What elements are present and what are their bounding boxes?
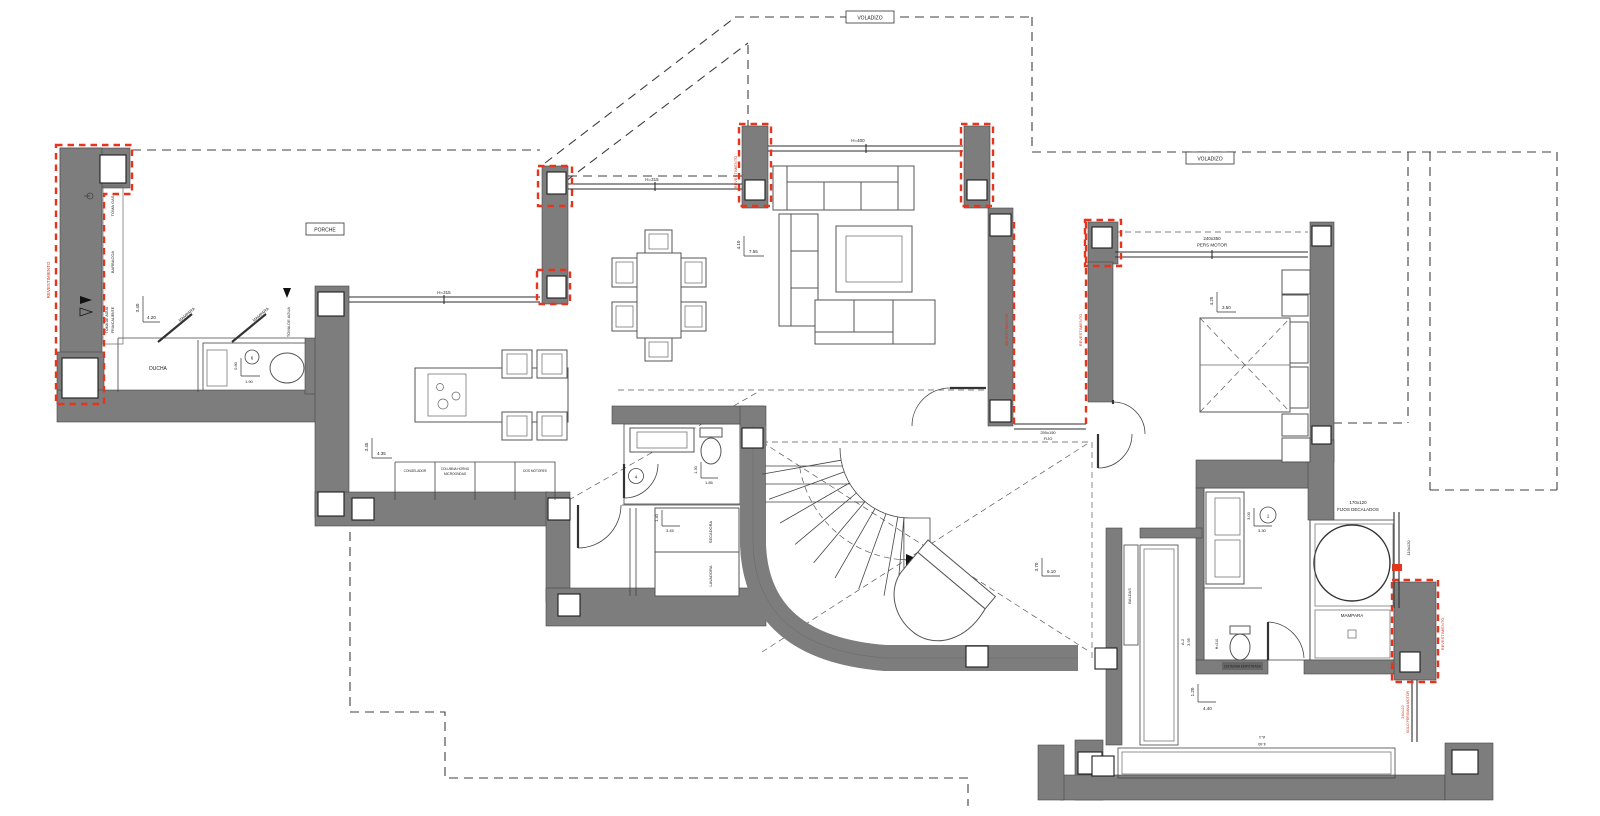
keynote-1: 1: [1267, 514, 1270, 519]
red-jamb-mark: [1392, 564, 1402, 571]
voladizo-top-label: VOLADIZO: [857, 16, 882, 22]
revestimiento-living: REVESTIMIENTO: [733, 156, 738, 189]
guest-wc: 4: [624, 428, 722, 498]
revestimiento-bath: REVESTIMIENTO: [1440, 618, 1445, 651]
svg-text:3.30: 3.30: [1258, 528, 1267, 533]
svg-text:1.40: 1.40: [654, 513, 659, 522]
window-bedroom: [1115, 250, 1308, 259]
solo-persiana: SOLO PERSIANA MOTOR: [1406, 690, 1410, 733]
cisterna-label: CISTERNA EMPOTRADA: [1224, 665, 1262, 669]
voladizo-right-label: VOLADIZO: [1197, 157, 1222, 163]
mampara-label: MAMPARA: [1341, 613, 1363, 618]
floor-plan-page: CONGELADOR COLUMNA HORNO MICROONDAS DOS …: [0, 0, 1600, 816]
keynote-4: 4: [635, 475, 638, 480]
svg-text:3.45: 3.45: [666, 528, 675, 533]
dim-bedroom: 4.25 3.50: [1209, 292, 1236, 312]
outdoor-bath: 6 MAMPARA MAMPARA DUCHA: [149, 306, 304, 386]
dim-dressing: 1.20 4.40: [1190, 684, 1216, 711]
bedroom-furniture: [1200, 270, 1310, 462]
toma-agua-label: TOMA DE AGUA: [105, 306, 109, 333]
dim-terrace: 3.40 4.20: [135, 296, 160, 322]
living-room-furniture: [773, 166, 935, 344]
svg-text:6.10: 6.10: [1047, 569, 1056, 574]
wardrobe-a2: [1140, 545, 1178, 745]
svg-text:3.70: 3.70: [1034, 562, 1039, 571]
wardrobe-a1: [1118, 748, 1395, 778]
a1-label: A-1: [1258, 735, 1265, 740]
fijos-decalados-size: 170x120: [1349, 500, 1367, 505]
toma-gas-label: TOMA GAS: [110, 195, 115, 216]
keynote-6: 6: [251, 356, 254, 361]
svg-text:3.40: 3.40: [135, 303, 140, 312]
pers-motor-size: 240x350: [1203, 236, 1221, 241]
main-bath: 1 CISTERNA EMPOTRADA H=210 MAMPARA: [1204, 492, 1393, 670]
cabinet-label: CONGELADOR: [404, 469, 427, 473]
svg-text:3.00: 3.00: [1246, 511, 1251, 520]
dim-bath: 3.00 3.30: [1246, 508, 1272, 533]
dim-guest-wc: 1.30 1.85: [693, 462, 718, 485]
kitchen-fixtures: CONGELADOR COLUMNA HORNO MICROONDAS DOS …: [395, 350, 568, 500]
fijo-size: 250x150: [1040, 430, 1056, 435]
svg-text:4.35: 4.35: [377, 451, 386, 456]
ducha-label: DUCHA: [149, 366, 167, 372]
mampara-label: MAMPARA: [251, 306, 270, 323]
fijo: FIJO: [1044, 436, 1053, 441]
svg-text:1.30: 1.30: [693, 465, 698, 474]
dim-kitchen: 3.45 4.35: [364, 438, 392, 458]
svg-text:4.25: 4.25: [1209, 296, 1214, 305]
window-h315-kitchen: H=315: [437, 290, 451, 295]
svg-text:1.90: 1.90: [245, 379, 254, 384]
a2-label: A-2: [1180, 638, 1185, 645]
mampara-label: MAMPARA: [177, 306, 196, 323]
window-tags: H=315 H=315 H=400 240x350 PERS MOTOR 250…: [437, 138, 1411, 733]
a2-length: 3.95: [1186, 637, 1191, 646]
ceiling-change-dashed-lines: [345, 232, 1308, 660]
barbacoa-label: BARBACOA: [110, 251, 115, 274]
svg-text:1.85: 1.85: [705, 480, 714, 485]
secadora-label: SECADORA: [708, 520, 713, 543]
revestimiento-corridor-1: REVESTIMIENTO: [1004, 314, 1009, 347]
dining-set: [612, 230, 706, 361]
grand-piano: [876, 540, 996, 659]
svg-text:0.80: 0.80: [233, 361, 238, 370]
svg-text:7.55: 7.55: [749, 249, 758, 254]
walls: [57, 126, 1493, 800]
toma-de-agua-label: TOMA DE AGUA: [286, 307, 291, 337]
window-h315-living: H=315: [645, 177, 659, 182]
cabinet-label: MICROONDAS: [444, 472, 466, 476]
laundry-closet: SECADORA LAVADORA: [630, 508, 739, 596]
svg-text:1.20: 1.20: [1190, 687, 1195, 696]
window-living-top: [768, 144, 963, 153]
svg-text:3.45: 3.45: [364, 442, 369, 451]
kitchen-exit-door: [578, 505, 621, 548]
a1-length: 4.40: [1257, 742, 1266, 747]
window-corridor-fijo: [1014, 424, 1086, 429]
svg-text:4.10: 4.10: [736, 240, 741, 249]
floor-plan-drawing: CONGELADOR COLUMNA HORNO MICROONDAS DOS …: [0, 0, 1600, 816]
solo-persiana-size: 240x110: [1401, 705, 1405, 718]
toma-agua-label2: FRIA/CALIENTE: [111, 306, 115, 333]
svg-text:3.50: 3.50: [1222, 305, 1231, 310]
cabinet-label: DOS MOTORES: [523, 469, 547, 473]
fijos-decalados: FIJOS DECALADOS: [1337, 507, 1379, 512]
water-tap-icon: [283, 288, 291, 298]
window-solo-persiana: [1412, 680, 1417, 742]
cabinet-label: COLUMNA HORNO: [441, 467, 470, 471]
lavadora-label: LAVADORA: [708, 565, 713, 587]
revestimiento-corridor-2: REVESTIMIENTO: [1078, 314, 1083, 347]
revestimiento-left: REVESTIMIENTO: [46, 261, 51, 298]
pers-motor: PERS MOTOR: [1197, 243, 1228, 248]
dim-hall: 3.70 6.10: [1034, 558, 1060, 576]
window-kitchen: [349, 295, 540, 304]
window-living-left: [568, 182, 742, 191]
dim-living: 4.10 7.55: [736, 236, 764, 256]
svg-text:4.20: 4.20: [147, 315, 156, 320]
h210-label: H=210: [1215, 639, 1219, 649]
round-bathtub: [1314, 525, 1390, 601]
porche-label: PORCHE: [314, 228, 336, 234]
size-110x120: 110x120: [1406, 540, 1411, 556]
svg-text:4.40: 4.40: [1203, 706, 1212, 711]
baldas-label: BALDAS: [1127, 588, 1132, 604]
window-h400: H=400: [851, 138, 865, 143]
